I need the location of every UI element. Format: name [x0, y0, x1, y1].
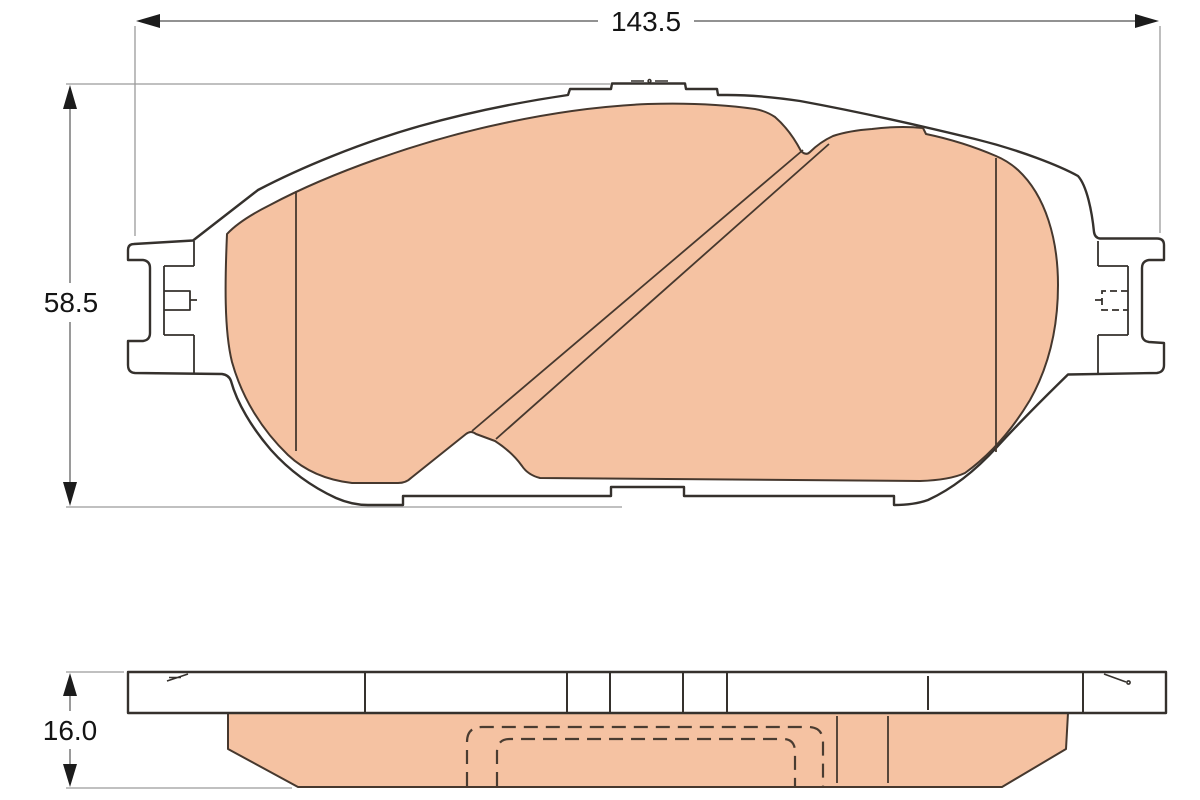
width-dimension-label: 143.5	[611, 6, 681, 37]
thickness-arrow-top	[63, 673, 77, 696]
height-dimension-label: 58.5	[44, 287, 99, 318]
thickness-dimension-label: 16.0	[43, 715, 98, 746]
dimension-width: 143.5	[136, 6, 1159, 37]
drawing-canvas: 143.5 58.5 16.0	[0, 0, 1200, 800]
thickness-arrow-bottom	[63, 764, 77, 787]
tab-center-dot	[648, 80, 651, 83]
width-arrow-right	[1135, 14, 1159, 28]
side-view	[128, 672, 1166, 787]
plan-view	[128, 80, 1164, 505]
height-arrow-bottom	[63, 482, 77, 506]
dimension-height: 58.5	[44, 85, 99, 506]
brake-pad-technical-drawing: 143.5 58.5 16.0	[0, 0, 1200, 800]
height-arrow-top	[63, 85, 77, 109]
friction-material-side	[228, 713, 1068, 787]
width-arrow-left	[136, 14, 160, 28]
dimension-thickness: 16.0	[43, 673, 98, 787]
backing-plate-side	[128, 672, 1166, 713]
